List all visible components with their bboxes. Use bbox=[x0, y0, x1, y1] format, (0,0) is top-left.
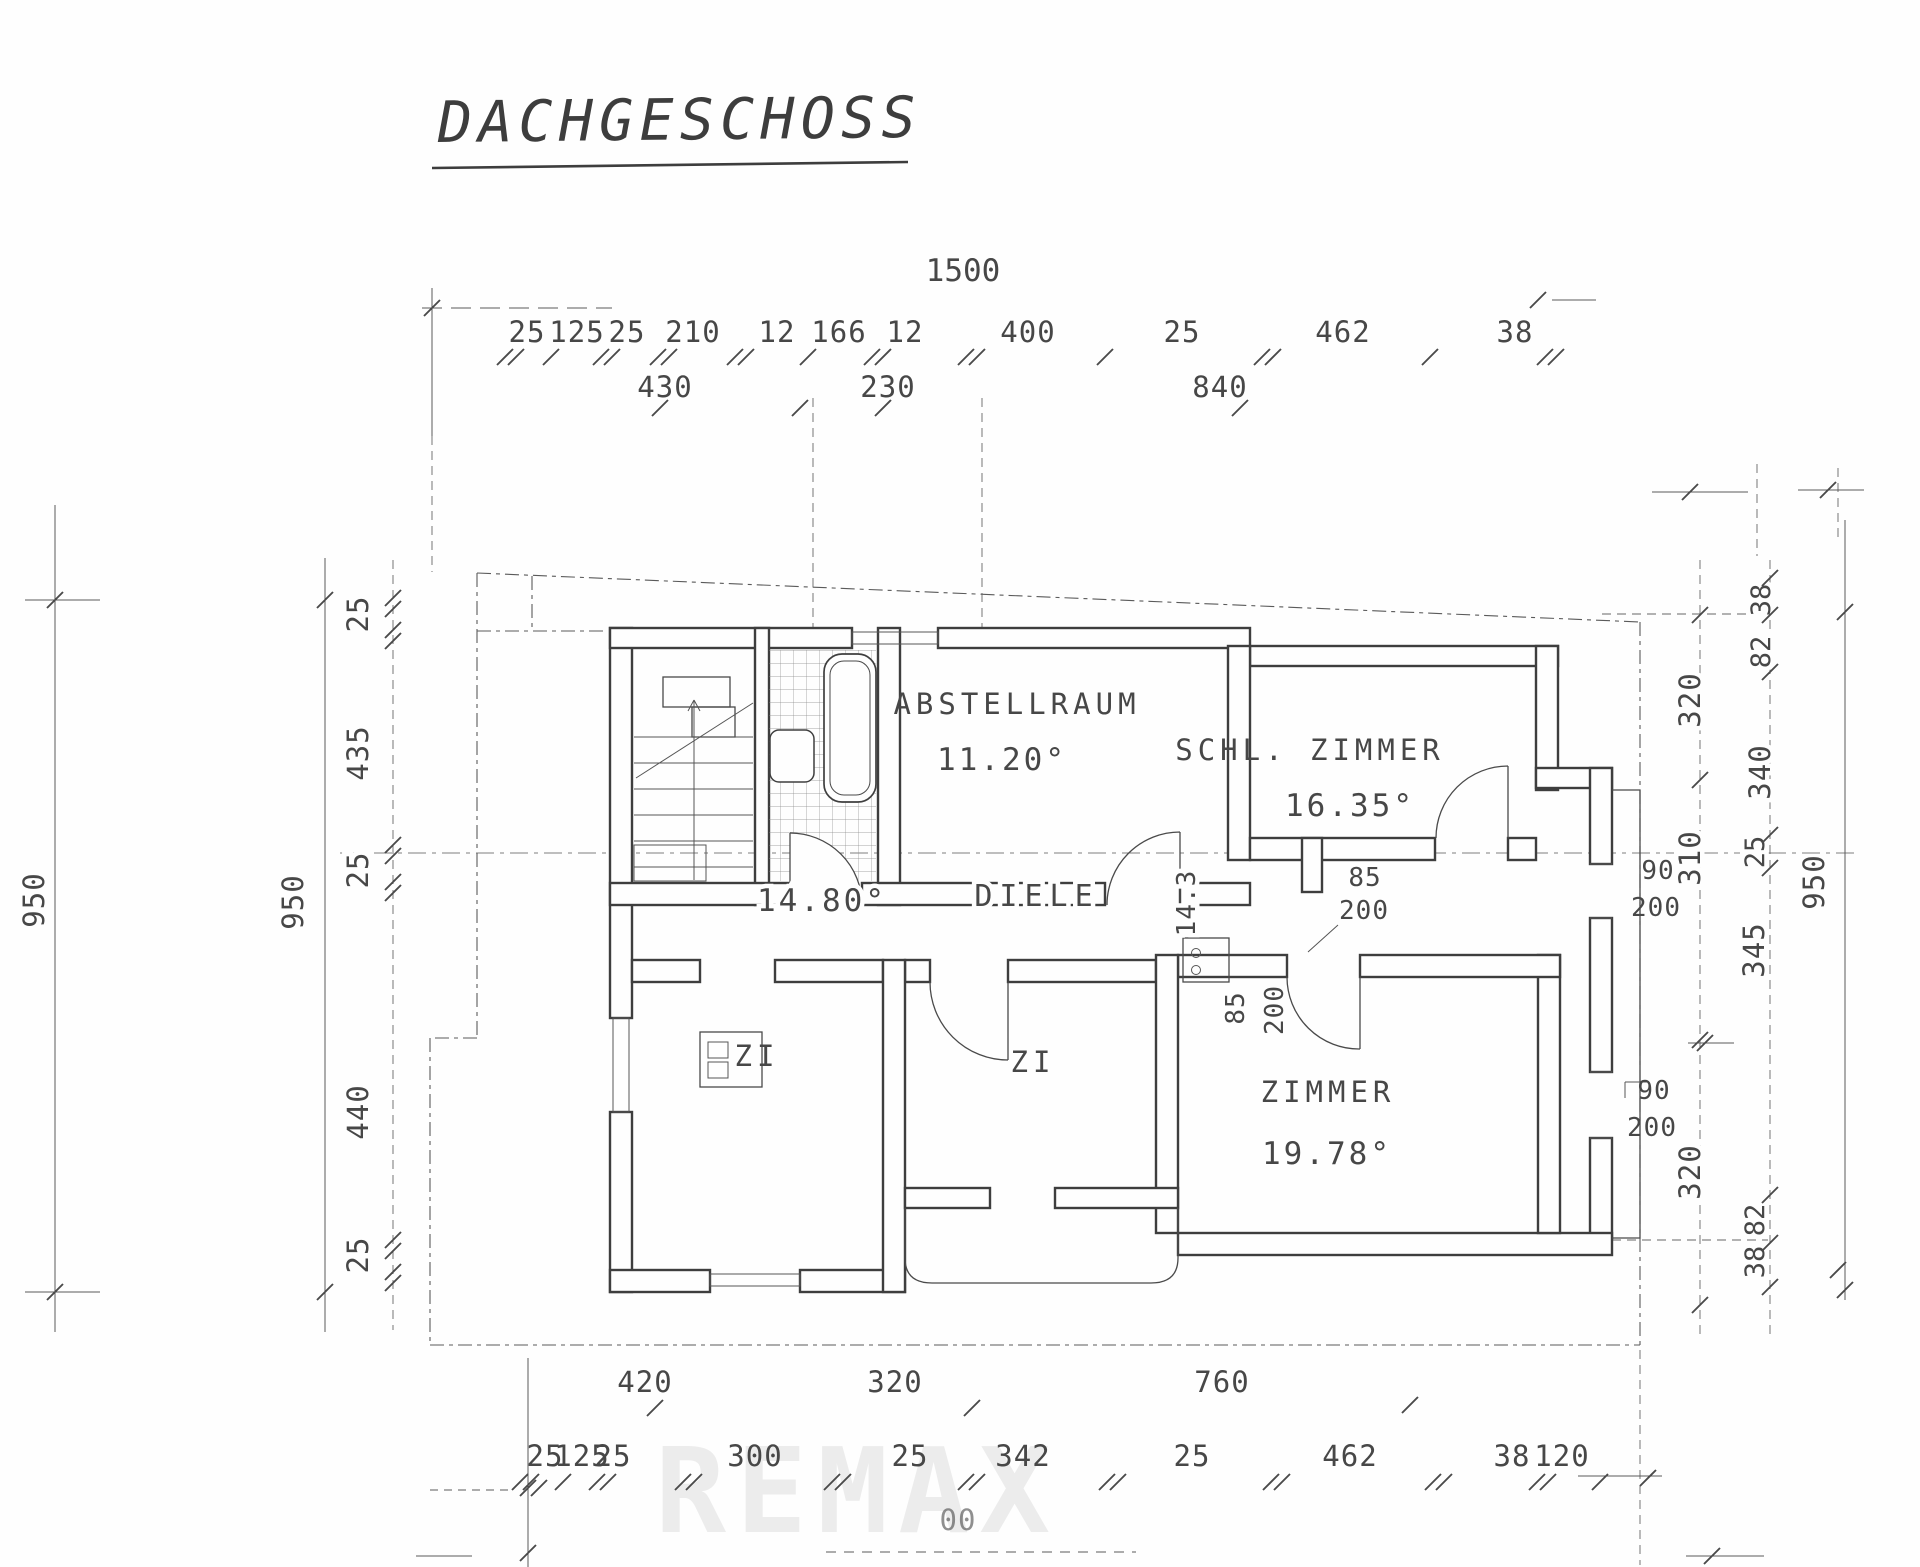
dim-top-3: 25 bbox=[609, 315, 646, 349]
room-label-abstellraum: ABSTELLRAUM bbox=[893, 687, 1140, 721]
room-label-zimmer: ZIMMER bbox=[1261, 1075, 1396, 1109]
dim-right-b7: 38 bbox=[1740, 1246, 1771, 1279]
door-width-85a: 85 bbox=[1348, 863, 1381, 893]
dim-bot-r2-5: 25 bbox=[892, 1439, 929, 1473]
door-height-85b: 200 bbox=[1260, 985, 1290, 1035]
dim-top-r2-3: 840 bbox=[1192, 370, 1247, 404]
dimension-chain-top: 1500 25 125 25 210 12 166 12 400 25 462 … bbox=[422, 253, 1596, 404]
dim-right-b4: 25 bbox=[1740, 836, 1771, 869]
reference-lines bbox=[55, 288, 1845, 1567]
page-title: DACHGESCHOSS bbox=[436, 85, 921, 156]
dimension-chain-bottom: 420 320 760 25 125 25 300 25 342 25 462 … bbox=[416, 1365, 1764, 1556]
dim-bot-r2-10: 120 bbox=[1534, 1439, 1589, 1473]
dim-right-a3: 320 bbox=[1673, 1144, 1707, 1199]
dim-bot-r2-4: 300 bbox=[727, 1439, 782, 1473]
dim-top-1: 25 bbox=[509, 315, 546, 349]
door-height-90a: 200 bbox=[1631, 893, 1681, 923]
dim-right-b6: 82 bbox=[1740, 1204, 1771, 1237]
drawing-title: DACHGESCHOSS bbox=[432, 85, 922, 168]
scan-page: REMAX DACHGESCHOSS bbox=[0, 0, 1920, 1567]
dim-bot-r1-3: 760 bbox=[1194, 1365, 1249, 1399]
dim-top-r2-2: 230 bbox=[860, 370, 915, 404]
room-area-abstellraum: 11.20° bbox=[937, 742, 1067, 778]
dim-bot-partial: 00 bbox=[940, 1503, 977, 1537]
room-area-zimmer: 19.78° bbox=[1262, 1136, 1392, 1172]
door-width-85b: 85 bbox=[1221, 991, 1251, 1024]
room-label-zi-links: ZI bbox=[735, 1039, 780, 1073]
dimension-chain-right: 320 310 320 38 82 340 25 345 82 38 950 bbox=[1652, 490, 1864, 1278]
dim-top-10: 462 bbox=[1315, 315, 1370, 349]
title-underline bbox=[432, 162, 908, 168]
dim-top-6: 166 bbox=[811, 315, 866, 349]
dim-left-c2: 435 bbox=[341, 725, 375, 780]
dim-top-9: 25 bbox=[1164, 315, 1201, 349]
dim-bot-r1-1: 420 bbox=[617, 1365, 672, 1399]
dim-right-overall: 950 bbox=[1797, 854, 1831, 909]
dim-top-5: 12 bbox=[759, 315, 796, 349]
dim-bot-r2-9: 38 bbox=[1494, 1439, 1531, 1473]
dim-left-c1: 25 bbox=[341, 596, 375, 633]
dim-bot-r2-7: 25 bbox=[1174, 1439, 1211, 1473]
room-area-diele: 14.80° bbox=[757, 883, 887, 919]
door-width-90b: 90 bbox=[1637, 1076, 1670, 1106]
room-label-diele: DIELE bbox=[974, 879, 1099, 914]
dim-top-8: 400 bbox=[1000, 315, 1055, 349]
dim-left-c3: 25 bbox=[341, 852, 375, 889]
door-height-85a: 200 bbox=[1339, 896, 1389, 926]
dim-bot-r2-3: 25 bbox=[595, 1439, 632, 1473]
dim-left-inner: 950 bbox=[276, 874, 310, 929]
dim-bot-r2-6: 342 bbox=[995, 1439, 1050, 1473]
dim-top-2: 125 bbox=[549, 315, 604, 349]
staircase bbox=[634, 677, 753, 881]
dim-diele-breite: 14.3 bbox=[1172, 870, 1202, 937]
dim-left-c4: 440 bbox=[341, 1084, 375, 1139]
dimension-chain-left: 950 950 25 435 25 440 25 bbox=[17, 596, 375, 1292]
dim-top-11: 38 bbox=[1497, 315, 1534, 349]
dim-left-outer: 950 bbox=[17, 872, 51, 927]
bathtub bbox=[824, 654, 876, 802]
room-label-zi-mitte: ZI bbox=[1011, 1045, 1056, 1079]
dim-top-7: 12 bbox=[887, 315, 924, 349]
bathroom bbox=[769, 650, 876, 905]
dim-left-c5: 25 bbox=[341, 1237, 375, 1274]
dim-top-overall: 1500 bbox=[926, 253, 1001, 289]
door-width-90a: 90 bbox=[1641, 856, 1674, 886]
dim-bot-r1-2: 320 bbox=[867, 1365, 922, 1399]
sink bbox=[770, 730, 814, 782]
room-label-schlafzimmer: SCHL. ZIMMER bbox=[1175, 733, 1445, 767]
floor-plan-drawing: REMAX DACHGESCHOSS bbox=[0, 0, 1920, 1567]
balcony-outline bbox=[905, 1208, 1178, 1283]
dim-right-a2: 310 bbox=[1673, 830, 1707, 885]
dim-bot-r2-8: 462 bbox=[1322, 1439, 1377, 1473]
dim-top-4: 210 bbox=[665, 315, 720, 349]
dim-right-a1: 320 bbox=[1673, 672, 1707, 727]
dim-right-b5: 345 bbox=[1737, 922, 1771, 977]
dimension-ticks bbox=[47, 292, 1853, 1564]
interior-walls bbox=[610, 628, 1560, 1292]
door-height-90b: 200 bbox=[1627, 1113, 1677, 1143]
room-area-schlafzimmer: 16.35° bbox=[1285, 788, 1415, 824]
dim-top-r2-1: 430 bbox=[637, 370, 692, 404]
dim-right-b2: 82 bbox=[1746, 636, 1777, 669]
dim-right-b3: 340 bbox=[1743, 744, 1777, 799]
